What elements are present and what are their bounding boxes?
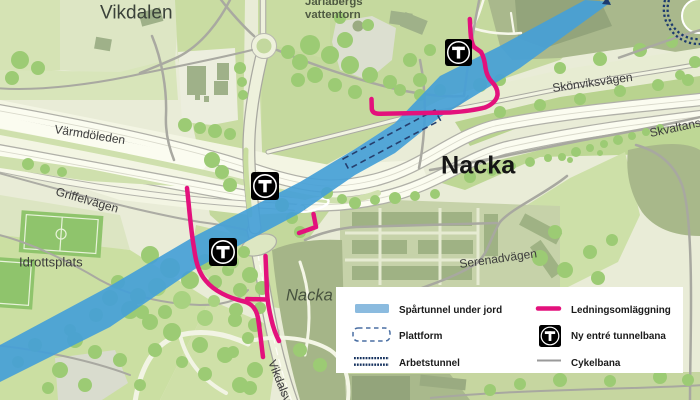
svg-text:Ny entré tunnelbana: Ny entré tunnelbana [571,331,666,342]
svg-text:Spårtunnel under jord: Spårtunnel under jord [399,305,502,316]
svg-text:Nacka: Nacka [441,152,516,180]
svg-text:Ledningsomläggning: Ledningsomläggning [571,305,671,316]
svg-text:Jarlabergs: Jarlabergs [305,0,363,8]
svg-text:Plattform: Plattform [399,331,443,342]
svg-text:Arbetstunnel: Arbetstunnel [399,358,460,369]
svg-text:Vikdalen: Vikdalen [100,3,173,24]
svg-text:Nacka: Nacka [286,287,333,305]
svg-text:Idrottsplats: Idrottsplats [19,255,83,270]
svg-text:Cykelbana: Cykelbana [571,358,621,369]
svg-text:vattentorn: vattentorn [305,9,361,21]
